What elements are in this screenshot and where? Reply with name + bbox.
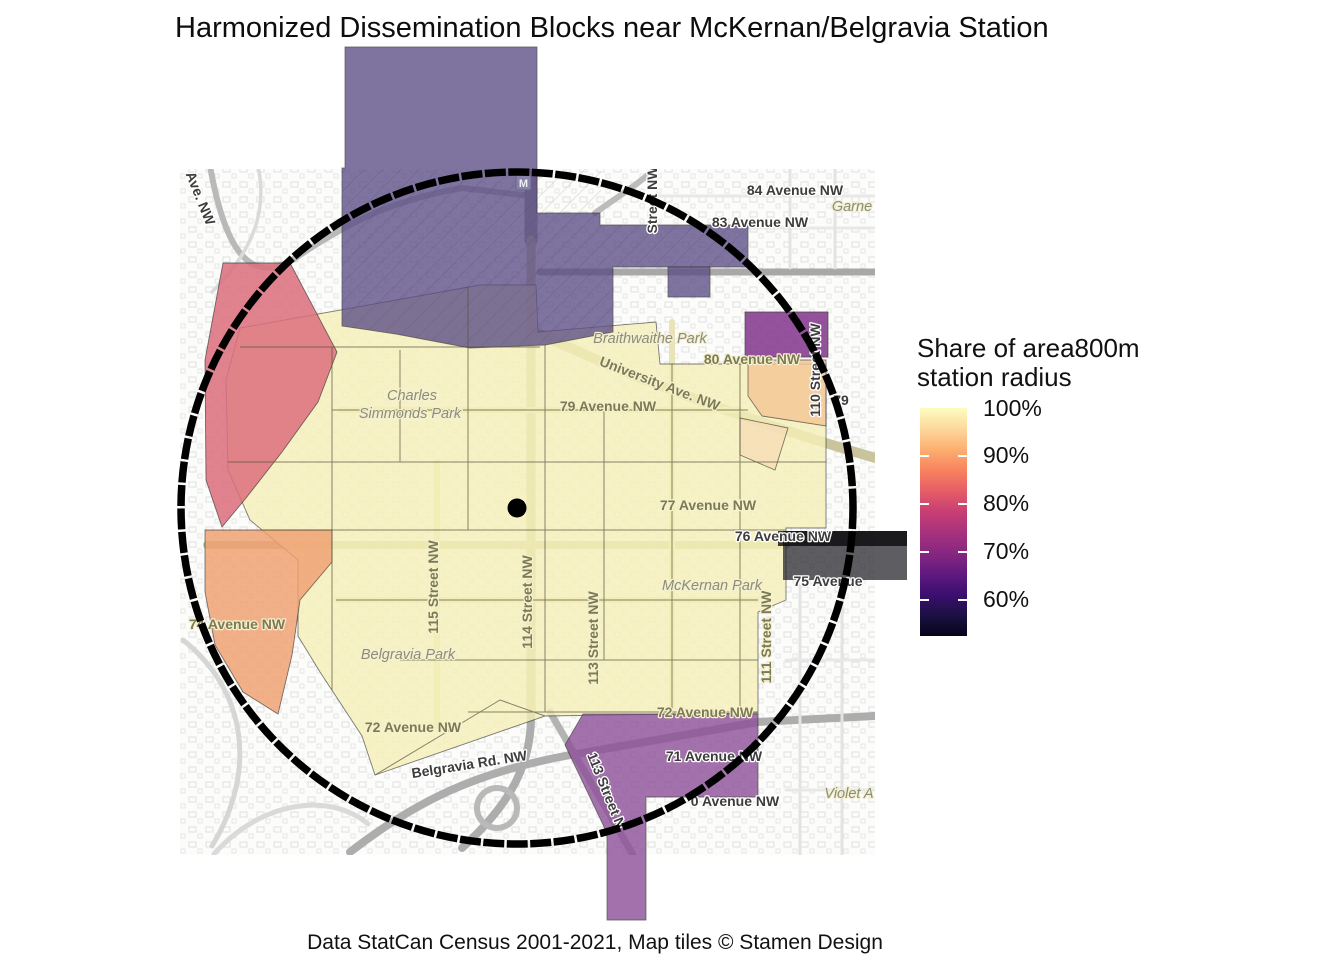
map-label-violet-a-27: Violet A xyxy=(824,786,873,802)
station-point xyxy=(508,499,527,518)
map-label-belgravia-park-22: Belgravia Park xyxy=(361,647,456,663)
map-label-72-avenue-nw-24: 72 Avenue NW xyxy=(657,704,754,720)
map-label-114-street-nw-17: 114 Street NW xyxy=(519,555,535,649)
map-label-115-street-nw-16: 115 Street NW xyxy=(425,540,441,634)
legend-tick-mark xyxy=(958,599,967,601)
caption: Data StatCan Census 2001-2021, Map tiles… xyxy=(180,931,1010,955)
legend-colorbar-wrap: 100%90%80%70%60% xyxy=(920,408,967,636)
map-label-80-avenue-nw-6: 80 Avenue NW xyxy=(704,351,801,367)
legend-colorbar xyxy=(920,408,967,636)
map-label-simmonds-park-12: Simmonds Park xyxy=(359,406,462,422)
legend-tick-mark xyxy=(920,599,929,601)
page-title: Harmonized Dissemination Blocks near McK… xyxy=(175,12,1049,45)
legend-tick-label-70: 70% xyxy=(983,538,1029,565)
map-label-113-street-nw-18: 113 Street NW xyxy=(585,591,601,685)
legend-tick-mark xyxy=(920,455,929,457)
legend-tick-mark xyxy=(920,503,929,505)
map-label-mckernan-park-20: McKernan Park xyxy=(662,578,763,594)
map-label-72-avenue-nw-23: 72 Avenue NW xyxy=(365,719,462,735)
map-label-garne-2: Garne xyxy=(832,199,872,215)
legend-tick-label-100: 100% xyxy=(983,395,1042,422)
legend-tick-mark xyxy=(958,503,967,505)
legend-tick-mark xyxy=(958,455,967,457)
block-83-avenue-extension xyxy=(668,267,710,297)
legend-title-line2: station radius xyxy=(917,363,1157,392)
legend-tick-label-80: 80% xyxy=(983,490,1029,517)
map-label-111-street-nw-19: 111 Street NW xyxy=(758,590,774,683)
map-label-charles-11: Charles xyxy=(387,388,437,404)
legend-tick-mark xyxy=(920,551,929,553)
map-label-83-avenue-nw-3: 83 Avenue NW xyxy=(712,214,809,230)
map-label-76-avenue-nw-14: 76 Avenue NW xyxy=(735,528,832,544)
legend-title-line1: Share of area800m xyxy=(917,334,1157,363)
map-figure: M Ave. NW84 Avenue NWGarne83 Avenue NWSt… xyxy=(0,0,1344,960)
map-label-0-avenue-nw-26: 0 Avenue NW xyxy=(691,793,780,809)
metro-station-letter: M xyxy=(519,178,528,190)
legend-tick-mark xyxy=(958,551,967,553)
legend-tick-label-90: 90% xyxy=(983,442,1029,469)
map-label-braithwaithe-park-7: Braithwaithe Park xyxy=(593,331,707,347)
map-label-75-avenue-15: 75 Avenue xyxy=(794,573,863,589)
map-label-84-avenue-nw-1: 84 Avenue NW xyxy=(747,182,844,198)
legend: Share of area800m station radius 100%90%… xyxy=(917,334,1157,392)
map-label-79-avenue-nw-9: 79 Avenue NW xyxy=(560,398,657,414)
map-label-77-avenue-nw-13: 77 Avenue NW xyxy=(660,497,757,513)
metro-station-icon: M xyxy=(516,175,531,190)
legend-tick-label-60: 60% xyxy=(983,586,1029,613)
